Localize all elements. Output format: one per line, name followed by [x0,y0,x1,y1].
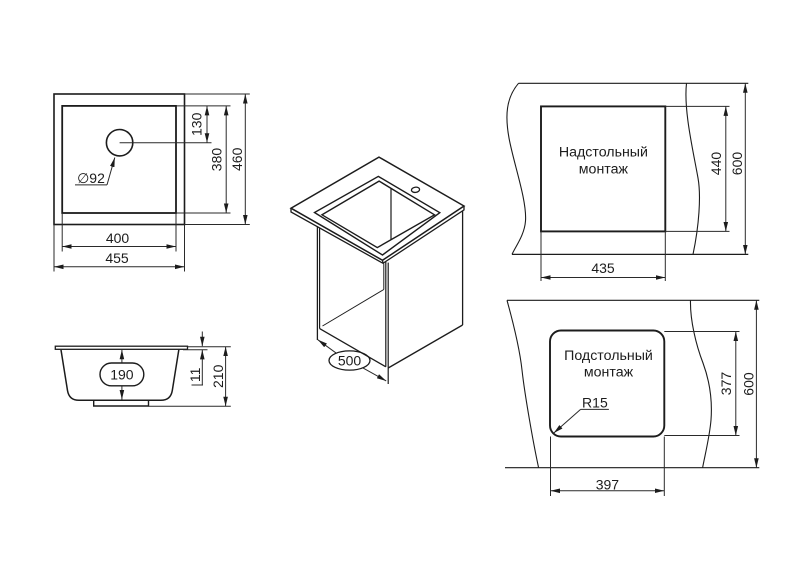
svg-text:440: 440 [708,152,724,176]
svg-text:11: 11 [187,367,203,382]
svg-text:∅92: ∅92 [77,170,105,186]
svg-text:500: 500 [338,353,362,369]
svg-text:400: 400 [106,230,130,246]
svg-text:377: 377 [718,372,734,396]
svg-text:Надстольный: Надстольный [559,145,648,161]
svg-text:435: 435 [591,260,615,276]
svg-text:455: 455 [105,250,129,266]
svg-text:600: 600 [729,152,745,176]
svg-text:210: 210 [210,364,226,388]
svg-text:130: 130 [189,112,205,136]
svg-text:Подстольный: Подстольный [564,348,653,364]
svg-text:600: 600 [740,372,756,396]
svg-text:монтаж: монтаж [579,162,629,178]
svg-text:397: 397 [596,476,620,492]
svg-text:монтаж: монтаж [584,365,634,381]
svg-text:460: 460 [229,147,245,171]
svg-text:190: 190 [110,366,134,382]
svg-text:R15: R15 [582,395,608,411]
svg-text:380: 380 [209,148,225,172]
